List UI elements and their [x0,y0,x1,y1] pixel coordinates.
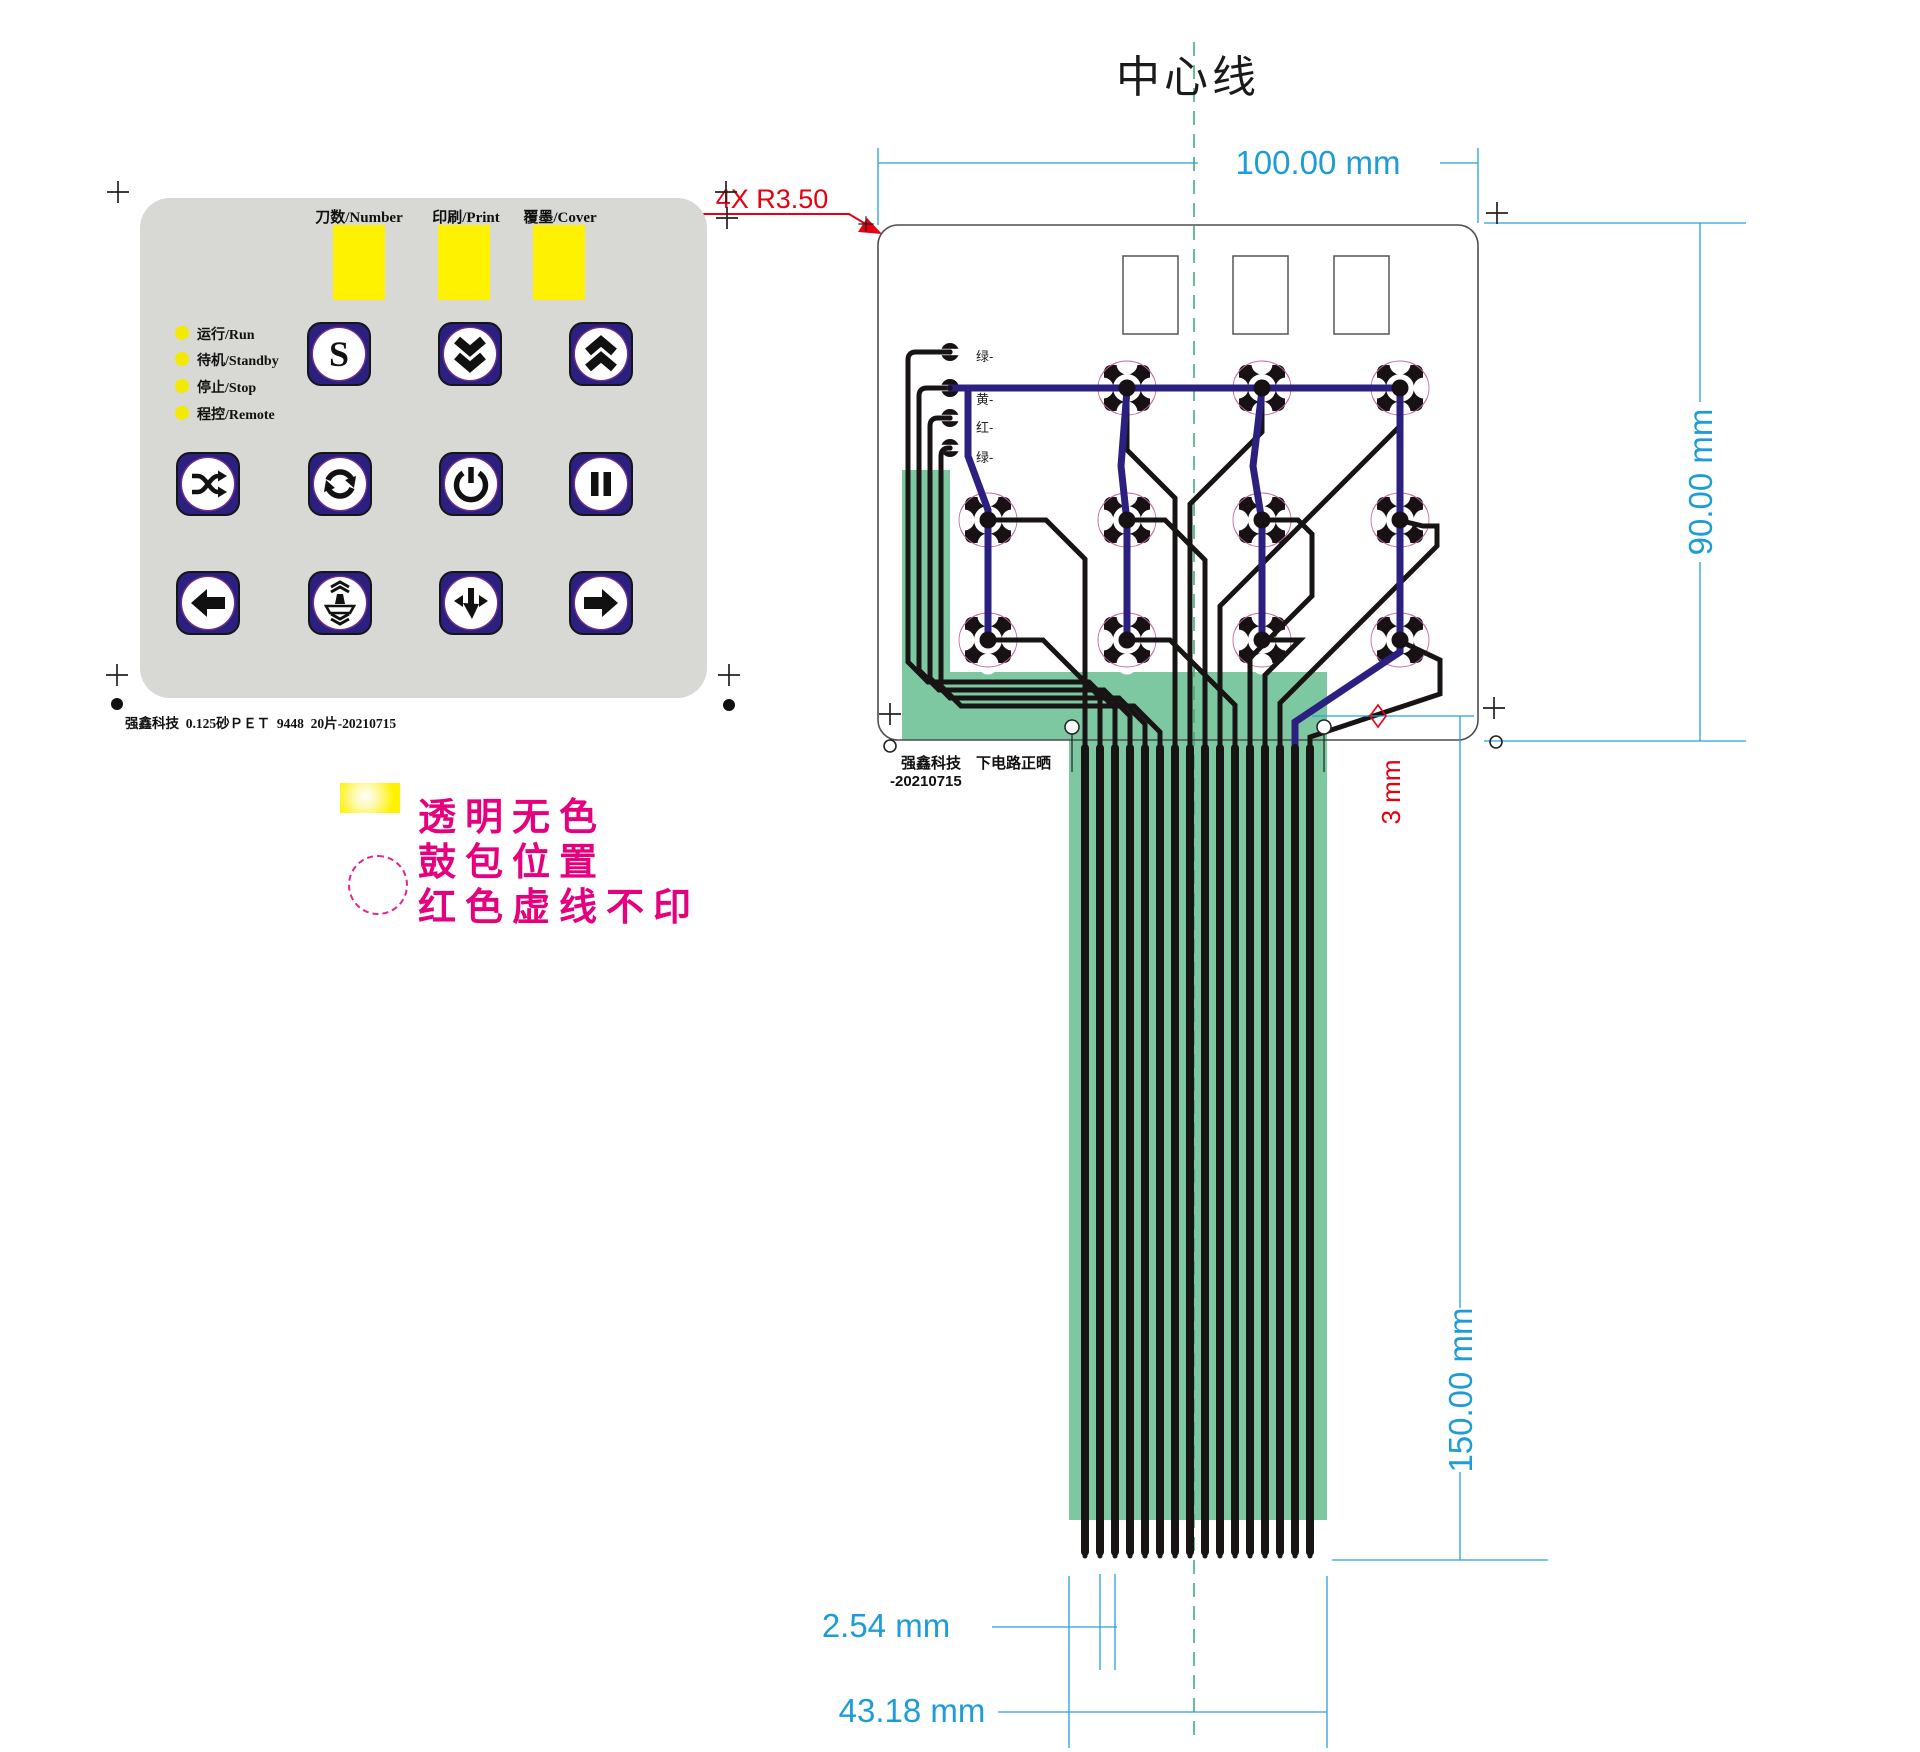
cycle-icon [314,458,366,510]
led-label-stop: 停止/Stop [197,377,256,397]
led-run [175,326,189,340]
led-label-remote: 程控/Remote [197,404,275,424]
button-power [439,452,503,516]
led-remote [175,406,189,420]
trace-label-green1: 绿- [976,349,993,364]
button-right [569,571,633,635]
shuffle-icon [182,458,234,510]
trace-label-yellow: 黄- [976,392,993,407]
dim-tail-length: 150.00 mm [1442,1307,1479,1472]
button-shuffle [176,452,240,516]
button-pause [569,452,633,516]
dim-hole: 3 mm [1376,760,1406,825]
chevrons-down-icon [444,328,496,380]
display-window-number [333,225,385,300]
window-label-print: 印刷/Print [432,206,500,227]
led-label-run: 运行/Run [197,324,255,344]
key-pad-centers [947,349,1408,648]
membrane-keypad-drawing: { "colors": { "panel_gray": "#d8d8d4", "… [0,0,1920,1752]
circuit-footer-line2: -20210715 [890,773,962,790]
s-glyph: S [329,336,349,372]
panel-footer-note: 强鑫科技 0.125砂ＰＥＴ 9448 20片-20210715 [125,712,396,732]
circuit-footer-line1: 强鑫科技 下电路正晒 [901,754,1051,772]
arrow-left-icon [182,577,234,629]
split-down-icon [445,577,497,629]
keypad-front-panel: 刀数/Number 印刷/Print 覆墨/Cover 运行/Run 待机/St… [140,198,707,698]
button-feed-down [439,571,503,635]
trace-label-green2: 绿- [976,450,993,465]
led-standby [175,352,189,366]
dim-tail-width: 43.18 mm [839,1692,986,1729]
legend-dashed-circle [348,855,408,915]
trace-color-labels: 绿- 黄- 红- 绿- [976,349,993,465]
press-platen-icon [314,577,366,629]
led-label-standby: 待机/Standby [197,350,279,370]
legend-yellow-swatch [340,783,400,813]
button-left [176,571,240,635]
centerline-title: 中心线 [1116,53,1260,102]
led-stop [175,379,189,393]
button-s: S [307,322,371,386]
svg-text:4X R3.50: 4X R3.50 [716,184,829,214]
hole-diameter-note: 3 mm [1370,705,1406,825]
button-press [308,571,372,635]
legend-line-3: 红色虚线不印 [418,876,700,931]
trace-label-red: 红- [976,420,993,435]
button-cycle [308,452,372,516]
dim-width: 100.00 mm [1235,144,1400,181]
dim-height: 90.00 mm [1682,409,1719,556]
display-window-print [438,225,490,300]
chevrons-up-icon [575,328,627,380]
power-icon [445,458,497,510]
window-label-number: 刀数/Number [315,206,403,227]
display-window-cover [533,225,585,300]
display-windows [1123,256,1389,334]
arrow-right-icon [575,577,627,629]
window-label-cover: 覆墨/Cover [523,206,596,227]
button-double-down [438,322,502,386]
button-double-up [569,322,633,386]
dim-pitch: 2.54 mm [822,1607,950,1644]
pause-icon [575,458,627,510]
